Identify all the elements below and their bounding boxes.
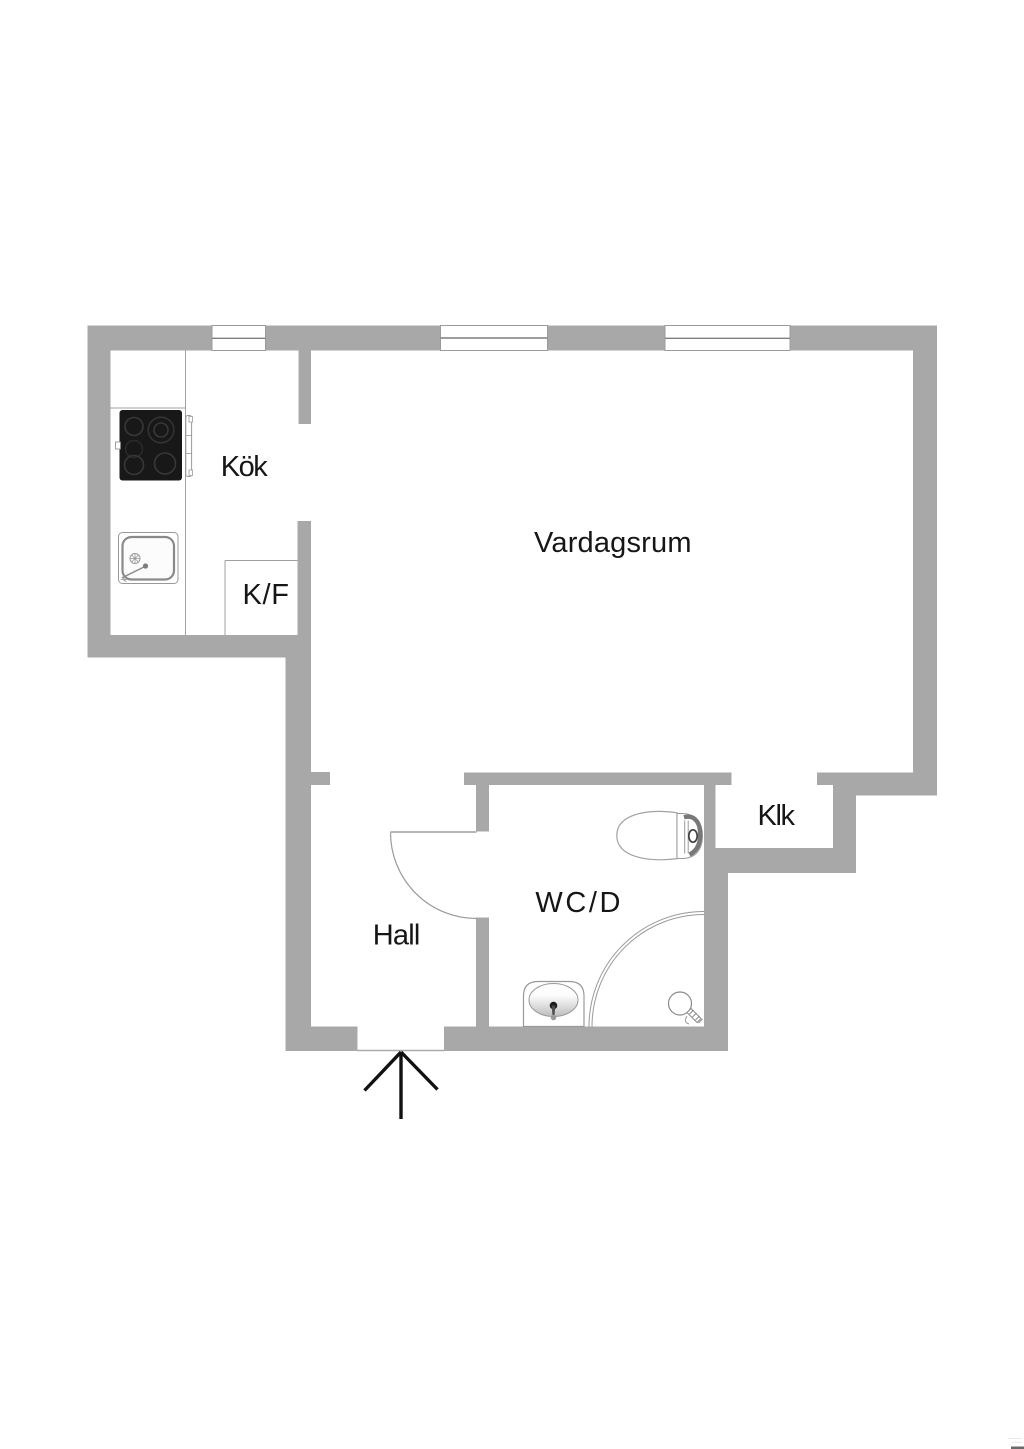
svg-text:K/F: K/F [243,579,290,611]
svg-text:WC/D: WC/D [535,887,620,919]
svg-text:Vardagsrum: Vardagsrum [534,527,692,559]
svg-text:Hall: Hall [373,919,421,951]
svg-text:Kök: Kök [221,451,268,483]
svg-text:Klk: Klk [758,800,796,832]
